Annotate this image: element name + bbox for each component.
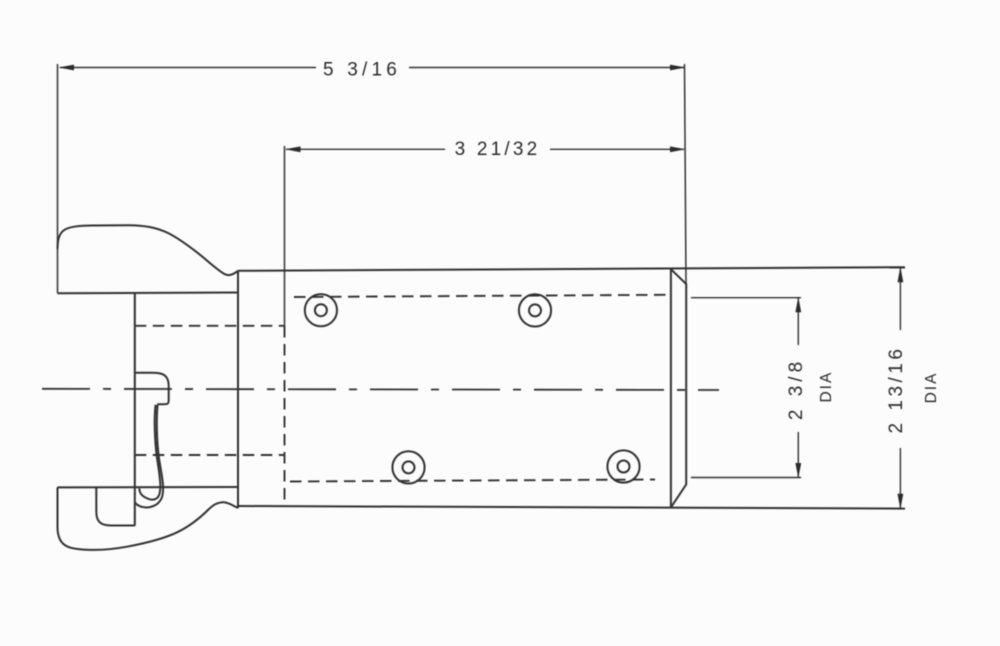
svg-text:DIA: DIA [818, 371, 835, 403]
svg-text:DIA: DIA [923, 372, 940, 404]
svg-text:3 21/32: 3 21/32 [455, 139, 541, 160]
svg-text:2 13/16: 2 13/16 [886, 346, 907, 434]
svg-text:5 3/16: 5 3/16 [323, 59, 401, 80]
svg-text:2 3/8: 2 3/8 [786, 358, 807, 420]
